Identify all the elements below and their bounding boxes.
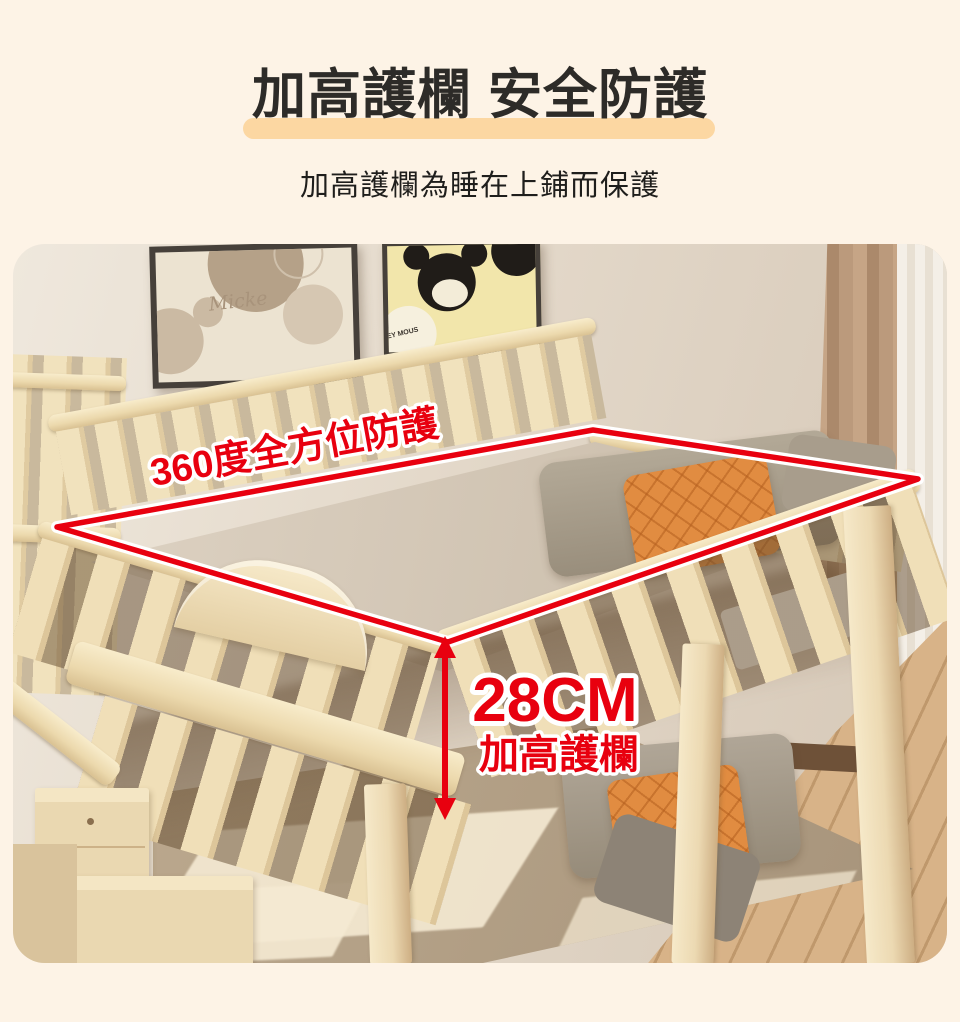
poster-left-circle-2 <box>282 284 344 346</box>
page-subtitle: 加高護欄為睡在上鋪而保護 <box>0 162 960 204</box>
page-title: 加高護欄 安全防護 <box>0 66 960 125</box>
stair-side-panel <box>13 844 77 963</box>
poster-right-badge-text: EY MOUS <box>386 327 419 341</box>
drawer-knob <box>87 818 94 825</box>
product-photo: Micke EY MOUS <box>13 244 947 963</box>
poster-right-mickey-head-2 <box>491 244 542 276</box>
bed-post <box>364 783 412 963</box>
stair-step <box>69 876 253 963</box>
